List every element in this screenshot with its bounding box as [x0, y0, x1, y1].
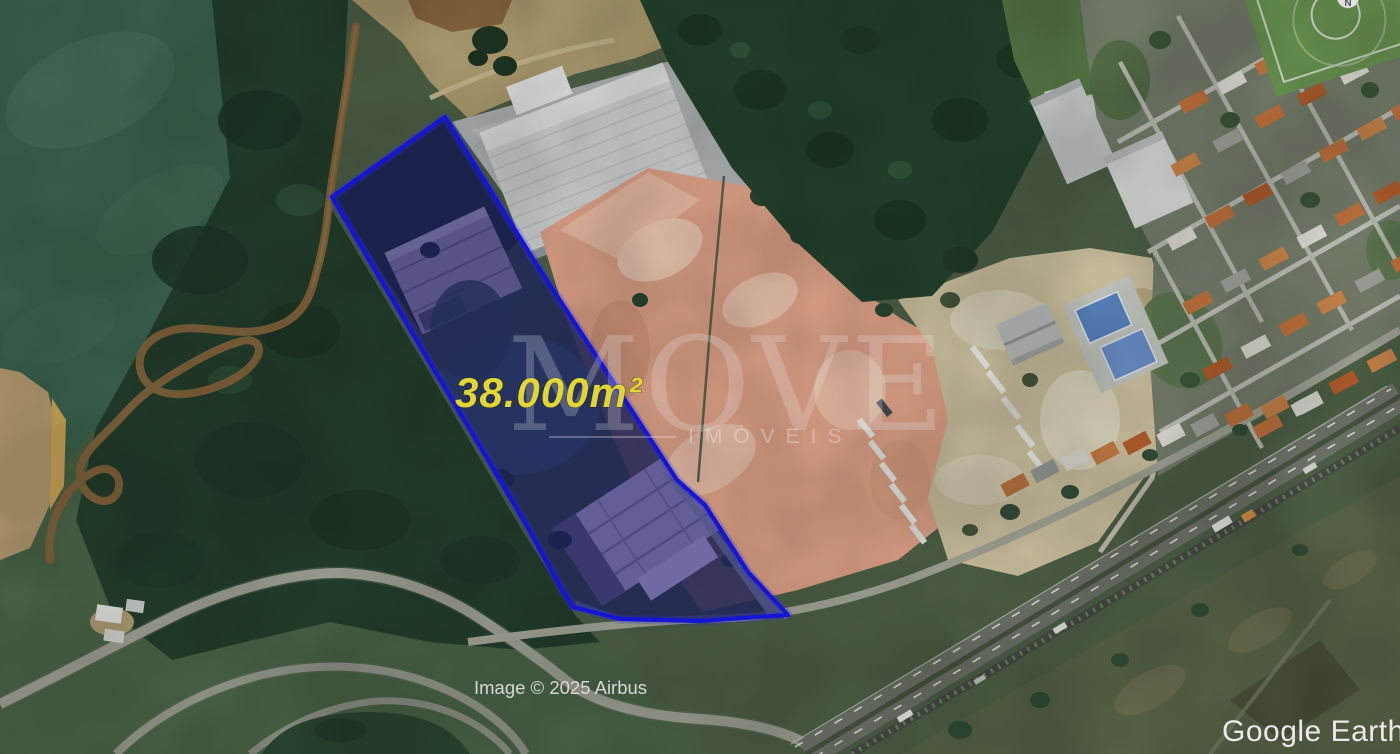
grain-overlay [0, 0, 1400, 754]
google-earth-satellite-view[interactable]: MOVE IMÓVEIS 38.000m² N Image © 2025 Air… [0, 0, 1400, 754]
